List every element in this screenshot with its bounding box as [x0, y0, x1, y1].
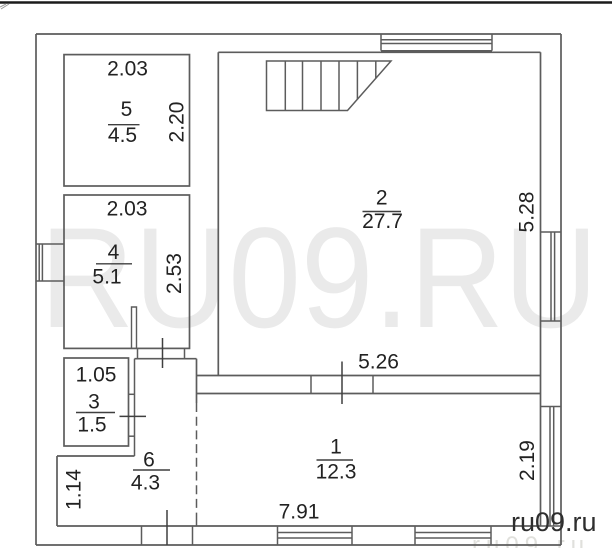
svg-text:2: 2: [376, 187, 388, 210]
svg-text:3: 3: [88, 391, 100, 414]
svg-text:6: 6: [143, 449, 155, 472]
svg-text:1.05: 1.05: [76, 364, 117, 387]
svg-text:2.53: 2.53: [163, 253, 186, 294]
svg-text:12.3: 12.3: [316, 461, 357, 484]
svg-text:5.1: 5.1: [92, 266, 121, 289]
svg-text:2.20: 2.20: [166, 102, 189, 143]
svg-text:2.03: 2.03: [107, 58, 148, 81]
svg-text:4.3: 4.3: [131, 472, 160, 495]
svg-text:1.5: 1.5: [77, 414, 106, 437]
svg-text:1.14: 1.14: [63, 469, 86, 510]
svg-text:RU09.RU: RU09.RU: [40, 199, 598, 358]
svg-text:1: 1: [330, 436, 342, 459]
svg-text:4: 4: [108, 241, 120, 264]
svg-text:2.03: 2.03: [107, 198, 148, 221]
svg-text:5.26: 5.26: [358, 351, 399, 374]
svg-text:4.5: 4.5: [108, 124, 137, 147]
svg-text:2.19: 2.19: [516, 440, 539, 481]
svg-text:27.7: 27.7: [362, 210, 403, 233]
svg-text:5: 5: [121, 98, 133, 121]
svg-text:7.91: 7.91: [279, 501, 320, 524]
svg-text:ru09.ru: ru09.ru: [511, 507, 597, 537]
svg-text:5.28: 5.28: [516, 192, 539, 233]
